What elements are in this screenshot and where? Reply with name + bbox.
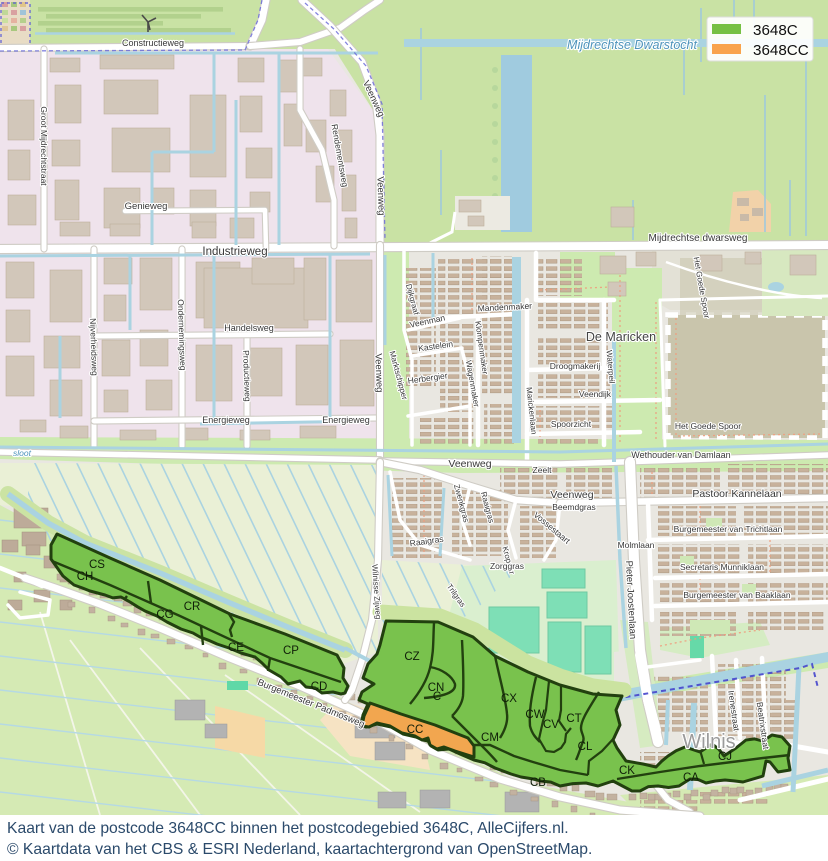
svg-text:CB: CB [530,777,546,789]
svg-text:CK: CK [619,765,635,777]
svg-text:3648CC: 3648CC [753,42,809,59]
svg-text:C: C [433,691,441,703]
svg-text:CW: CW [525,709,544,721]
svg-text:CZ: CZ [404,651,419,663]
svg-text:CA: CA [683,772,699,784]
svg-text:Het Goede Spoor: Het Goede Spoor [675,421,741,431]
svg-text:Handelsweg: Handelsweg [224,323,274,333]
svg-text:CD: CD [311,681,328,693]
svg-text:Droogmakerij: Droogmakerij [550,361,601,371]
svg-text:CM: CM [481,732,499,744]
svg-text:CP: CP [283,645,299,657]
svg-text:Beemdgras: Beemdgras [552,502,595,512]
svg-text:Veenweg: Veenweg [448,458,491,470]
svg-text:CR: CR [184,601,201,613]
svg-text:CX: CX [501,693,517,705]
svg-text:Mijdrechtse Dwarstocht: Mijdrechtse Dwarstocht [567,38,697,52]
svg-text:Veenweg: Veenweg [374,176,386,215]
svg-text:Groot Mijdrechtstraat: Groot Mijdrechtstraat [39,106,49,186]
svg-text:Molmlaan: Molmlaan [618,540,655,550]
svg-text:Kaart van de postcode 3648CC b: Kaart van de postcode 3648CC binnen het … [7,820,569,837]
svg-text:CG: CG [156,609,173,621]
svg-text:CC: CC [407,724,424,736]
svg-text:Mijdrechtse dwarsweg: Mijdrechtse dwarsweg [649,233,748,244]
svg-text:sloot: sloot [13,448,32,458]
svg-text:Energieweg: Energieweg [322,415,370,425]
svg-text:CT: CT [566,713,581,725]
svg-text:CS: CS [89,559,105,571]
svg-text:Pastoor Kannelaan: Pastoor Kannelaan [692,488,781,500]
svg-text:Burgemeester van Baaklaan: Burgemeester van Baaklaan [683,590,791,600]
svg-text:CH: CH [77,571,94,583]
svg-text:Wilnis: Wilnis [682,731,735,753]
svg-text:Nijverheidsweg: Nijverheidsweg [88,318,100,376]
svg-text:Productieweg: Productieweg [241,350,253,402]
svg-text:CV: CV [543,719,559,731]
svg-text:CL: CL [578,741,593,753]
svg-text:Veendijk: Veendijk [579,389,612,399]
svg-text:Spoorzicht: Spoorzicht [551,419,592,429]
svg-text:Energieweg: Energieweg [202,415,250,425]
svg-text:Burgemeester van Trichtlaan: Burgemeester van Trichtlaan [674,524,783,534]
svg-text:Wethouder van Damlaan: Wethouder van Damlaan [631,450,730,460]
svg-text:Industrieweg: Industrieweg [202,246,267,258]
svg-text:© Kaartdata van het CBS & ESRI: © Kaartdata van het CBS & ESRI Nederland… [7,841,592,858]
svg-text:CE: CE [228,642,244,654]
svg-text:Zorggras: Zorggras [490,561,524,571]
svg-text:CJ: CJ [718,751,732,763]
svg-text:Veenweg: Veenweg [550,489,593,501]
svg-text:Constructieweg: Constructieweg [122,38,184,48]
svg-text:De Maricken: De Maricken [586,330,656,344]
svg-text:Zeelt: Zeelt [533,465,553,475]
svg-text:3648C: 3648C [753,22,798,39]
svg-text:Secretaris Munniklaan: Secretaris Munniklaan [680,562,764,572]
svg-text:Genieweg: Genieweg [125,201,168,212]
svg-text:Veenweg: Veenweg [372,353,384,392]
